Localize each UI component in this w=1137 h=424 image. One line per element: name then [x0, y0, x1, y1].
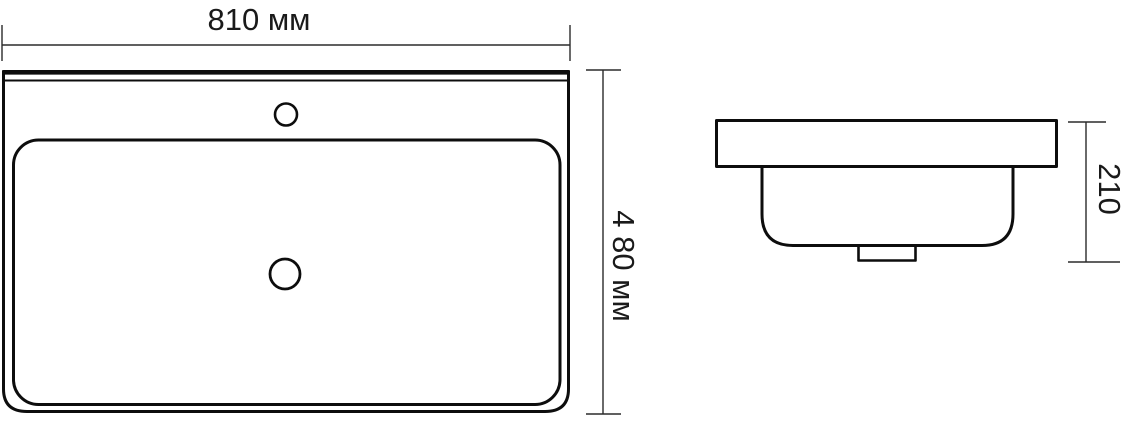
basin-outer-outline [4, 72, 569, 412]
depth-dimension-label: 4 80 мм [606, 210, 641, 322]
height-dimension: 210 [1068, 122, 1127, 262]
washbasin-dimension-drawing: 810 мм 4 80 мм 210 [0, 0, 1137, 424]
side-view [717, 121, 1057, 261]
width-dimension: 810 мм [2, 2, 570, 61]
basin-bowl-outline [14, 140, 561, 405]
depth-dimension: 4 80 мм [586, 70, 641, 414]
plan-view [2, 72, 570, 412]
drawing-svg: 810 мм 4 80 мм 210 [0, 0, 1137, 424]
side-drain-stub [859, 246, 916, 261]
side-bowl-outline [762, 167, 1013, 246]
height-dimension-label: 210 [1092, 163, 1127, 215]
drain-hole [270, 259, 300, 289]
side-rim-outline [717, 121, 1057, 167]
faucet-hole [275, 104, 297, 126]
width-dimension-label: 810 мм [208, 2, 311, 37]
